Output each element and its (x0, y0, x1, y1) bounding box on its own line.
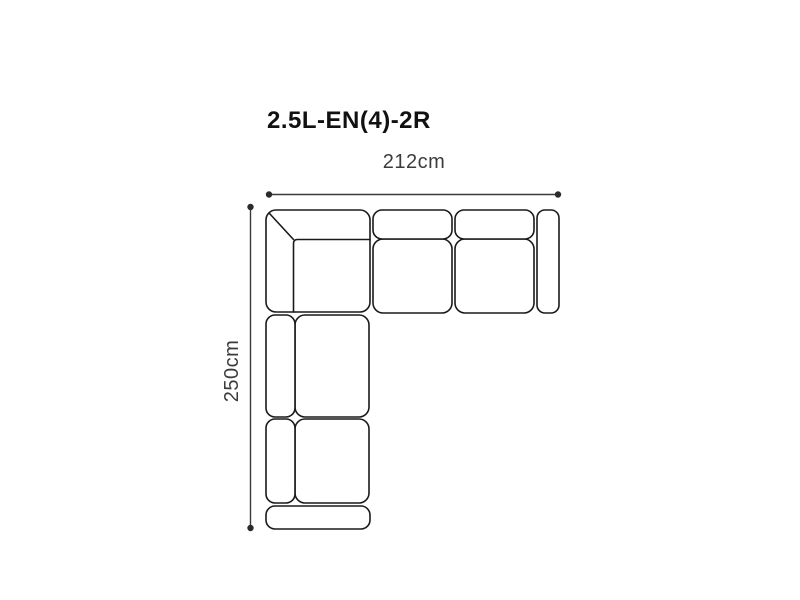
seat-cushion (373, 239, 452, 313)
sofa-dimension-diagram: 2.5L-EN(4)-2R 212cm 250cm (0, 0, 800, 600)
chaise-seat-lower (266, 419, 369, 503)
diagram-canvas: 2.5L-EN(4)-2R 212cm 250cm (0, 0, 800, 600)
chaise-seat-upper (266, 315, 369, 417)
width-dimension-label: 212cm (383, 151, 446, 173)
width-dimension: 212cm (266, 151, 561, 198)
diagram-title: 2.5L-EN(4)-2R (267, 107, 431, 134)
armrest-right (537, 210, 559, 313)
armrest-front (266, 506, 370, 529)
seat-unit-middle (373, 210, 452, 313)
back-cushion (373, 210, 452, 239)
dimension-endpoint-dot (247, 525, 253, 531)
seat-unit-right (455, 210, 534, 313)
sofa-outline (266, 210, 559, 529)
seat-cushion (295, 315, 369, 417)
corner-unit-body (266, 210, 370, 312)
dimension-endpoint-dot (266, 191, 272, 197)
height-dimension: 250cm (221, 204, 254, 531)
seat-cushion (295, 419, 369, 503)
seat-cushion (455, 239, 534, 313)
corner-unit (266, 210, 370, 312)
back-cushion (266, 419, 295, 503)
back-cushion (455, 210, 534, 239)
dimension-endpoint-dot (247, 204, 253, 210)
height-dimension-label: 250cm (221, 340, 243, 403)
dimension-endpoint-dot (555, 191, 561, 197)
back-cushion (266, 315, 295, 417)
